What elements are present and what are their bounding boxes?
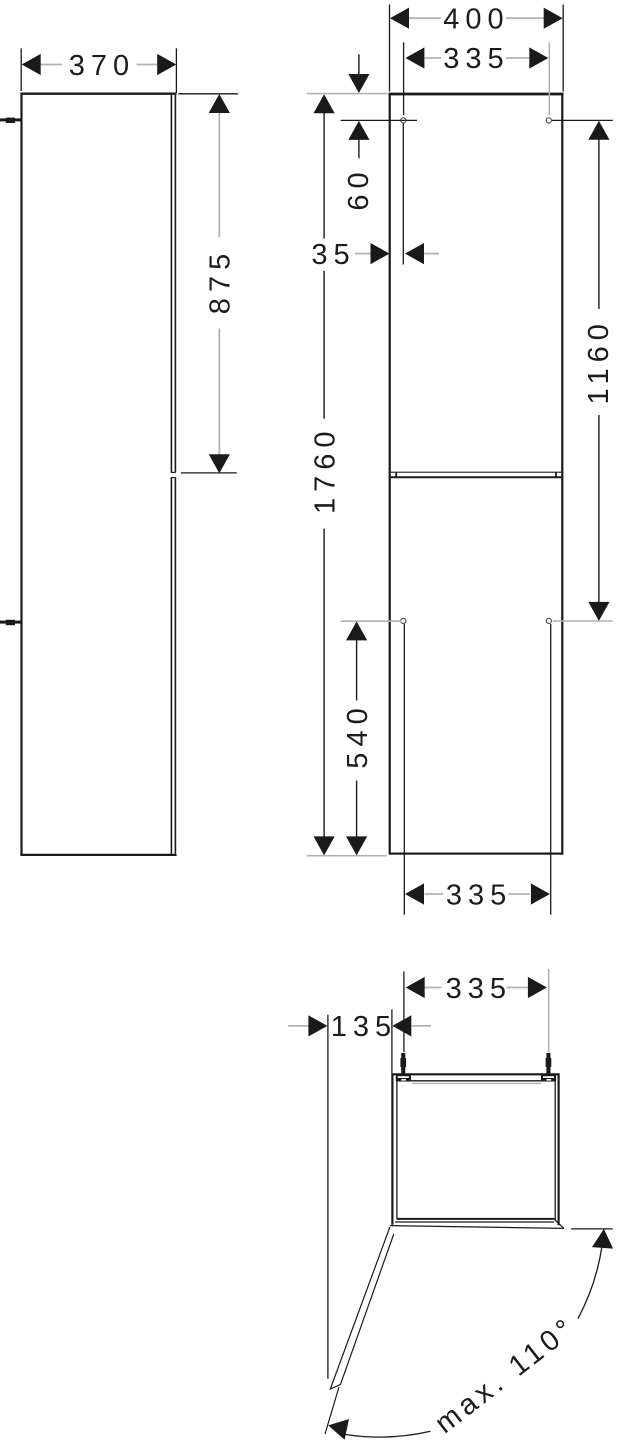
svg-text:max. 110°: max. 110° xyxy=(429,1311,582,1440)
svg-text:400: 400 xyxy=(443,3,509,35)
svg-text:540: 540 xyxy=(342,702,374,768)
svg-text:335: 335 xyxy=(443,43,509,75)
svg-text:135: 135 xyxy=(331,1011,397,1043)
svg-text:1760: 1760 xyxy=(309,426,341,515)
svg-text:875: 875 xyxy=(205,248,237,314)
svg-text:1160: 1160 xyxy=(583,318,615,404)
svg-text:370: 370 xyxy=(69,50,135,82)
svg-text:335: 335 xyxy=(446,973,512,1005)
svg-text:335: 335 xyxy=(446,880,512,912)
svg-text:35: 35 xyxy=(311,239,355,271)
svg-text:60: 60 xyxy=(343,166,375,210)
